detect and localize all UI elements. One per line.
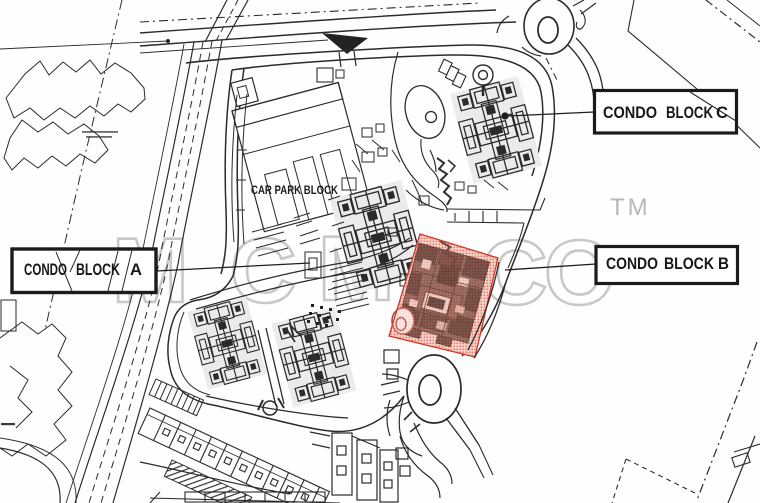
svg-text:CAR PARK BLOCK: CAR PARK BLOCK — [251, 183, 338, 197]
svg-text:TM: TM — [610, 194, 651, 221]
svg-text:CONDOBLOCKB: CONDOBLOCKB — [606, 254, 729, 273]
svg-text:CONDOBLOCKC: CONDOBLOCKC — [603, 103, 728, 122]
